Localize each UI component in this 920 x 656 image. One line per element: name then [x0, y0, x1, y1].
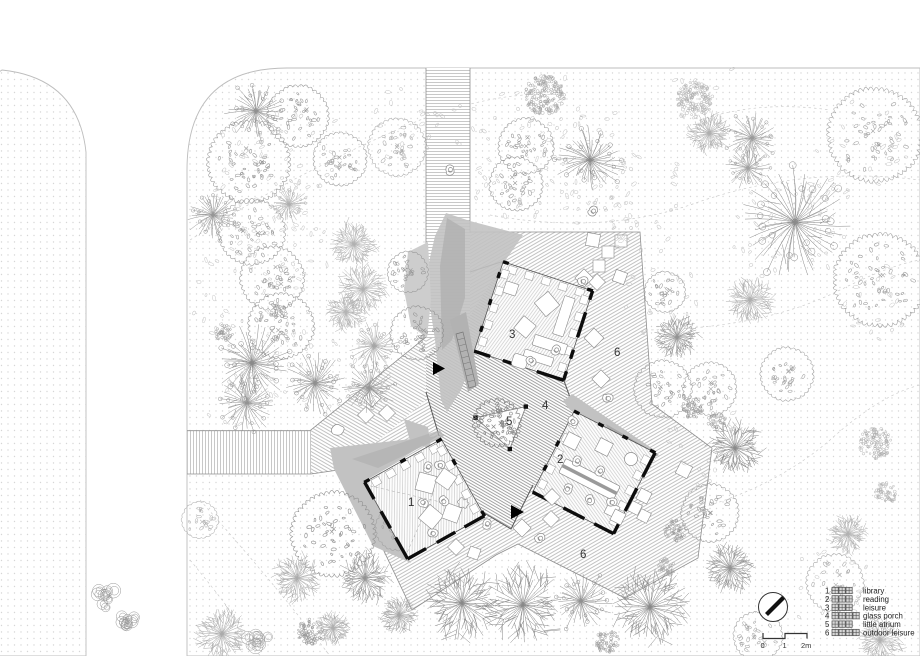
svg-text:0: 0	[761, 641, 765, 650]
svg-text:2: 2	[557, 454, 563, 466]
svg-text:1: 1	[408, 497, 414, 509]
svg-text:6: 6	[614, 347, 620, 359]
svg-text:6: 6	[580, 549, 586, 561]
svg-text:1: 1	[783, 641, 787, 650]
svg-text:5: 5	[506, 416, 512, 428]
svg-text:outdoor leisure: outdoor leisure	[863, 629, 915, 638]
svg-text:4: 4	[542, 400, 549, 412]
svg-text:6: 6	[825, 629, 829, 638]
svg-text:3: 3	[509, 329, 515, 341]
svg-text:2m: 2m	[801, 641, 811, 650]
